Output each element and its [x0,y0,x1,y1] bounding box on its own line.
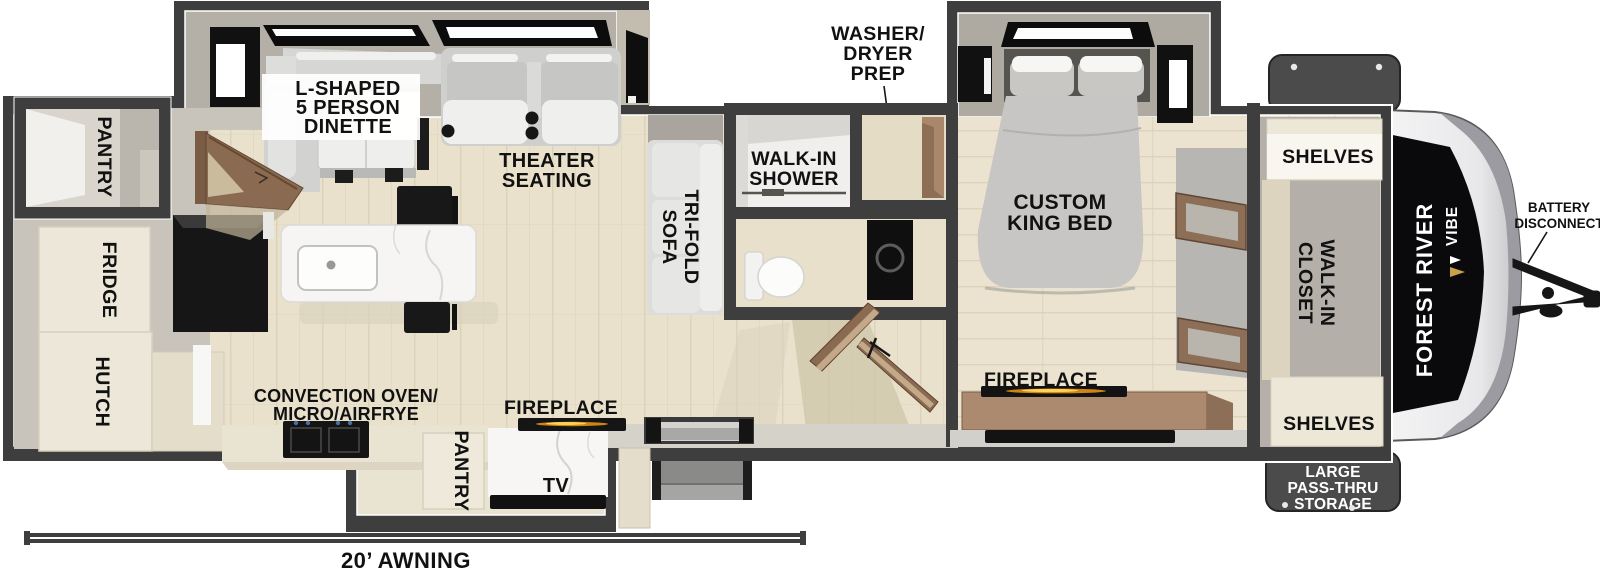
svg-text:TV: TV [543,475,570,497]
svg-text:CUSTOM: CUSTOM [1013,191,1106,214]
svg-text:THEATER: THEATER [499,150,595,172]
svg-text:DINETTE: DINETTE [304,116,392,138]
svg-text:FIREPLACE: FIREPLACE [984,369,1098,391]
svg-text:PASS-THRU: PASS-THRU [1287,480,1378,497]
svg-text:SHELVES: SHELVES [1282,146,1374,168]
svg-text:MICRO/AIRFRYE: MICRO/AIRFRYE [273,404,419,424]
svg-text:FOREST RIVER: FOREST RIVER [1412,203,1437,378]
svg-text:SHELVES: SHELVES [1283,413,1375,435]
svg-text:SEATING: SEATING [502,170,592,192]
svg-text:STORAGE: STORAGE [1294,496,1372,513]
svg-text:WASHER/: WASHER/ [831,23,925,45]
svg-text:CLOSET: CLOSET [1294,242,1316,324]
svg-text:TRI-FOLD: TRI-FOLD [680,190,702,285]
svg-text:FRIDGE: FRIDGE [98,242,120,319]
svg-text:LARGE: LARGE [1305,464,1360,481]
svg-text:KING BED: KING BED [1007,212,1113,235]
svg-text:VIBE: VIBE [1444,206,1461,246]
svg-text:PREP: PREP [851,63,906,85]
svg-text:WALK-IN: WALK-IN [751,148,837,170]
svg-text:FIREPLACE: FIREPLACE [504,397,618,419]
svg-text:PANTRY: PANTRY [450,431,472,512]
svg-text:WALK-IN: WALK-IN [1316,240,1338,327]
svg-text:BATTERY: BATTERY [1528,200,1590,215]
svg-text:SOFA: SOFA [658,209,680,264]
svg-text:PANTRY: PANTRY [93,117,115,198]
svg-text:CONVECTION OVEN/: CONVECTION OVEN/ [254,386,438,406]
svg-text:20’ AWNING: 20’ AWNING [341,548,471,571]
svg-text:SHOWER: SHOWER [749,168,839,190]
svg-text:DISCONNECT: DISCONNECT [1514,216,1600,231]
svg-text:HUTCH: HUTCH [91,357,113,428]
svg-text:DRYER: DRYER [843,43,913,65]
